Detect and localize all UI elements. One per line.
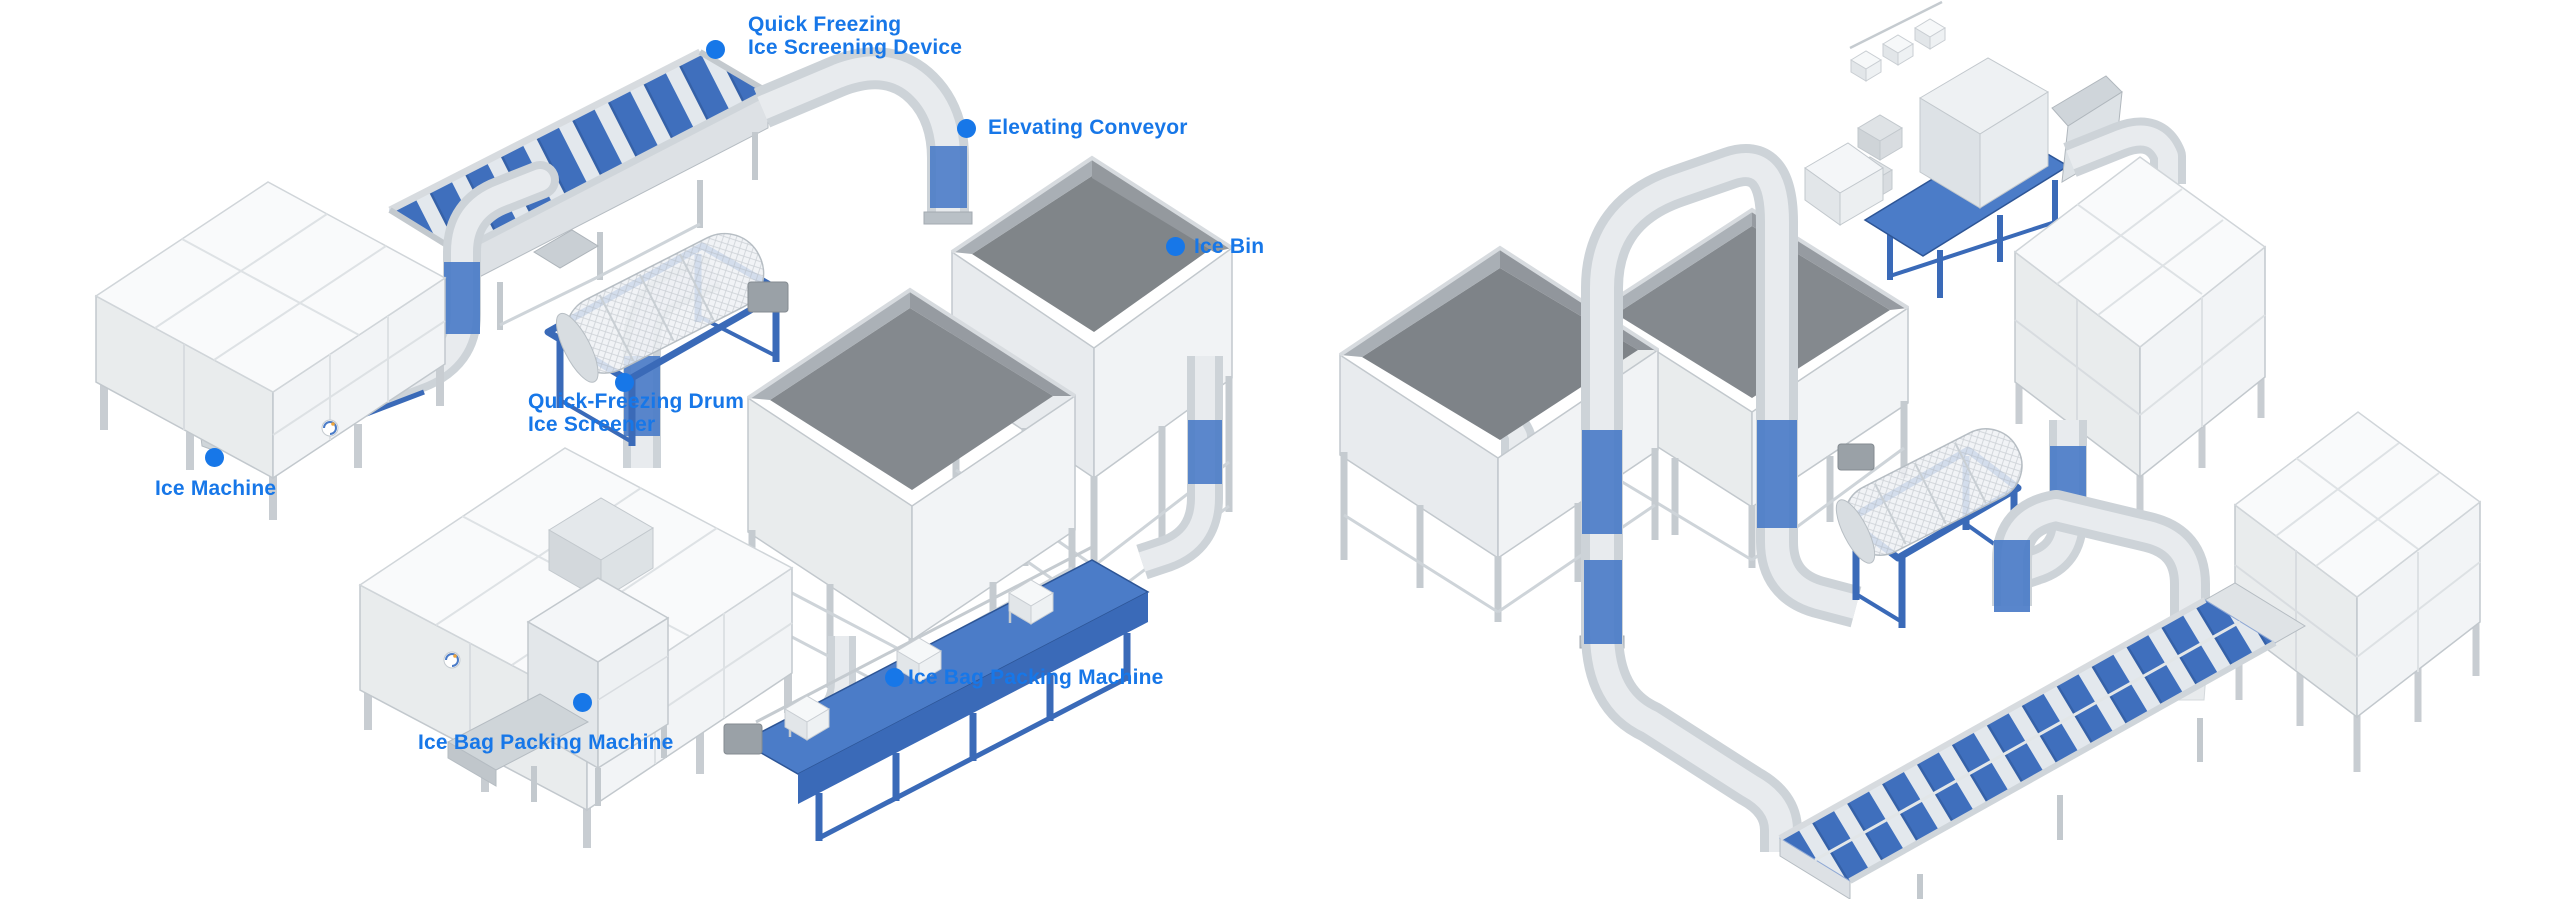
right-screen-feed-conveyor: [1584, 560, 1781, 852]
right-ice-machine: [2235, 412, 2480, 772]
label-line: Ice Screening Device: [748, 36, 962, 59]
label-line: Ice Bag Packing Machine: [908, 666, 1164, 689]
left-ice-machine: [96, 182, 445, 520]
label-line: Ice Screener: [528, 413, 744, 436]
label-ice-bin: Ice Bin: [1194, 235, 1264, 258]
ice-production-line-page: Quick Freezing Ice Screening Device Elev…: [0, 0, 2559, 899]
bagger-unit: [1915, 19, 1945, 49]
left-elevating-conveyor: [762, 68, 972, 224]
quick-freezing-ice-screening-device-dot: [706, 40, 725, 59]
brand-logo-icon: [322, 420, 338, 436]
label-ice-machine: Ice Machine: [155, 477, 276, 500]
label-elevating-conveyor: Elevating Conveyor: [988, 116, 1188, 139]
left-production-line: [96, 52, 1232, 848]
bagger-unit: [1851, 51, 1881, 81]
label-line: Elevating Conveyor: [988, 116, 1188, 139]
label-line: Ice Bin: [1194, 235, 1264, 258]
label-line: Ice Bag Packing Machine: [418, 731, 674, 754]
brand-logo-icon: [444, 652, 460, 668]
bagger-unit: [1883, 35, 1913, 65]
label-line: Quick-Freezing Drum: [528, 390, 744, 413]
ice-bin-dot: [1166, 237, 1185, 256]
production-line-diagram: [0, 0, 2559, 899]
label-line: Ice Machine: [155, 477, 276, 500]
ice-bag-packing-machine-right-dot: [885, 668, 904, 687]
elevating-conveyor-dot: [957, 119, 976, 138]
ice-machine-dot: [205, 448, 224, 467]
label-quick-freezing-ice-screening-device: Quick Freezing Ice Screening Device: [748, 13, 962, 59]
label-quick-freezing-drum-ice-screener: Quick-Freezing Drum Ice Screener: [528, 390, 744, 436]
ice-bag-packing-machine-left-dot: [573, 693, 592, 712]
label-line: Quick Freezing: [748, 13, 962, 36]
right-production-line: [1340, 2, 2480, 899]
right-quick-freezing-ice-screening-device: [1780, 583, 2305, 899]
label-ice-bag-packing-machine-right: Ice Bag Packing Machine: [908, 666, 1164, 689]
label-ice-bag-packing-machine-left: Ice Bag Packing Machine: [418, 731, 674, 754]
